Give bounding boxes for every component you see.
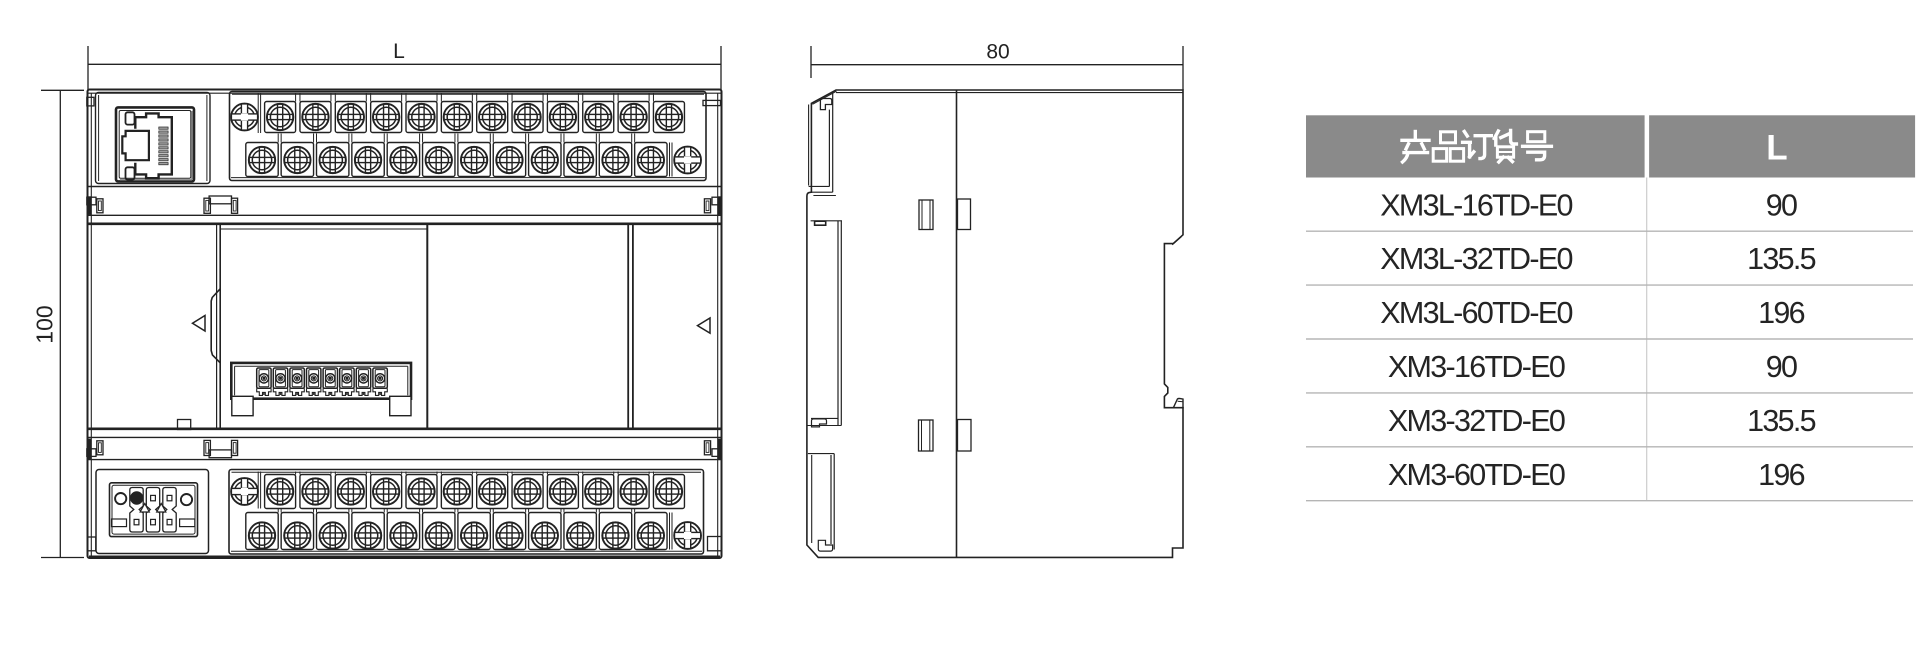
svg-text:XM3-16TD-E0: XM3-16TD-E0 — [1388, 350, 1565, 384]
svg-text:80: 80 — [986, 41, 1009, 64]
svg-text:XM3L-32TD-E0: XM3L-32TD-E0 — [1380, 242, 1572, 276]
svg-text:196: 196 — [1758, 458, 1805, 492]
svg-text:L: L — [1766, 128, 1787, 167]
svg-text:135.5: 135.5 — [1747, 242, 1816, 276]
svg-text:100: 100 — [32, 305, 58, 343]
svg-text:196: 196 — [1758, 296, 1805, 330]
svg-text:L: L — [393, 40, 405, 63]
svg-text:135.5: 135.5 — [1747, 404, 1816, 438]
svg-text:XM3L-16TD-E0: XM3L-16TD-E0 — [1380, 188, 1572, 222]
svg-text:XM3-60TD-E0: XM3-60TD-E0 — [1388, 458, 1565, 492]
svg-text:90: 90 — [1766, 188, 1797, 222]
svg-text:90: 90 — [1766, 350, 1797, 384]
svg-text:XM3-32TD-E0: XM3-32TD-E0 — [1388, 404, 1565, 438]
svg-text:XM3L-60TD-E0: XM3L-60TD-E0 — [1380, 296, 1572, 330]
